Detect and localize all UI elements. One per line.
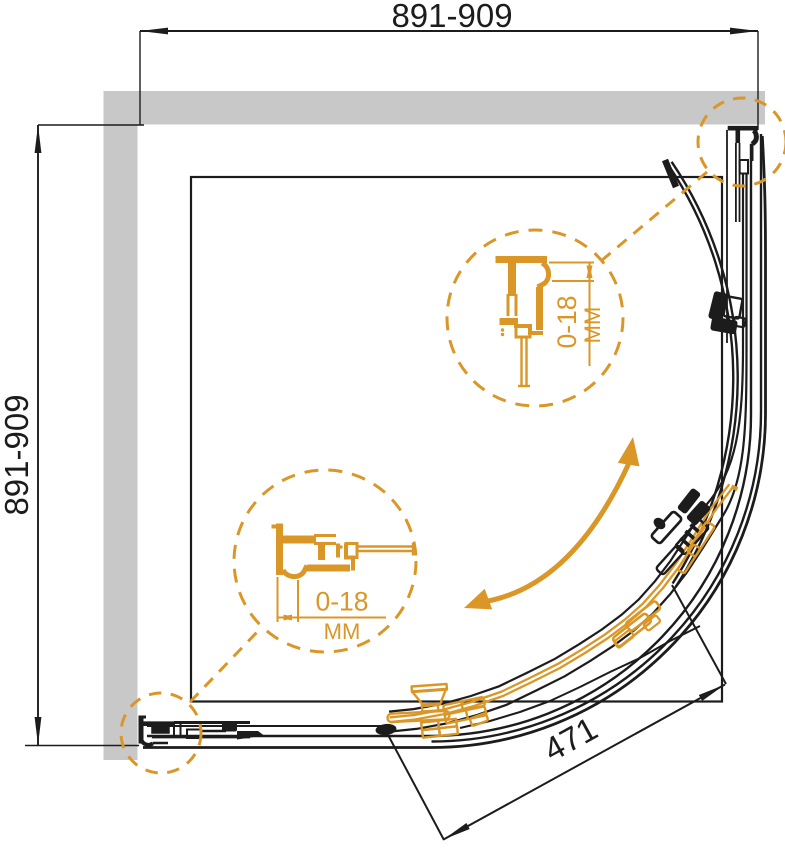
svg-text:471: 471 (537, 709, 603, 768)
svg-text:0-18: 0-18 (315, 587, 368, 617)
svg-text:0-18: 0-18 (552, 295, 582, 348)
svg-text:891-909: 891-909 (391, 0, 512, 34)
svg-text:ММ: ММ (324, 619, 361, 644)
svg-text:ММ: ММ (580, 307, 605, 344)
svg-text:891-909: 891-909 (0, 394, 35, 515)
